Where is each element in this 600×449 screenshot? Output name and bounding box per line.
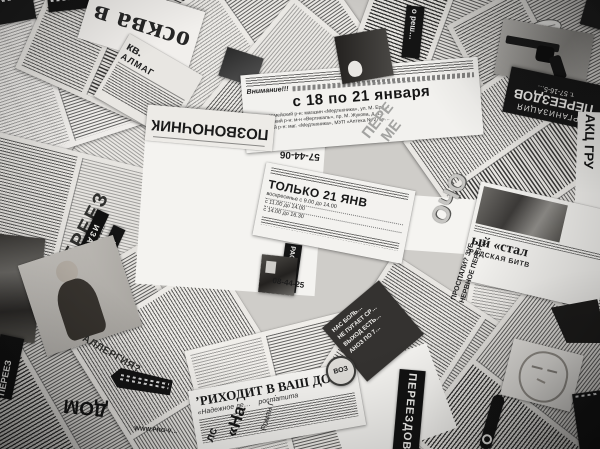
sketch-head-outline [513, 346, 573, 408]
right-edge-word2: ГРУ [576, 142, 600, 171]
pozvonochnik-text: ПОЗВОНОЧНИК [150, 116, 269, 143]
vertical-label-text: о реш… [403, 5, 424, 44]
photo-highlight [265, 261, 276, 274]
white-text-lines [51, 0, 89, 2]
white-text-lines [0, 0, 30, 3]
dark-still-photo [334, 28, 394, 84]
right-edge-word1: АКЦ [577, 112, 600, 144]
dom-text: ДОМ [62, 395, 108, 421]
ring-shape [481, 433, 493, 445]
white-text-lines [575, 393, 597, 398]
portrait-body [52, 274, 108, 342]
dom-headline: ДОМ [61, 386, 112, 421]
round-emblem-text: ВОЗ [333, 365, 349, 376]
outline-letters-text: ОЧО [426, 169, 474, 230]
white-jug-shape [347, 60, 364, 78]
newspaper-collage-photo: осква в кв. АЛМАГ Внимание!!! с 18 по 21… [0, 0, 600, 449]
